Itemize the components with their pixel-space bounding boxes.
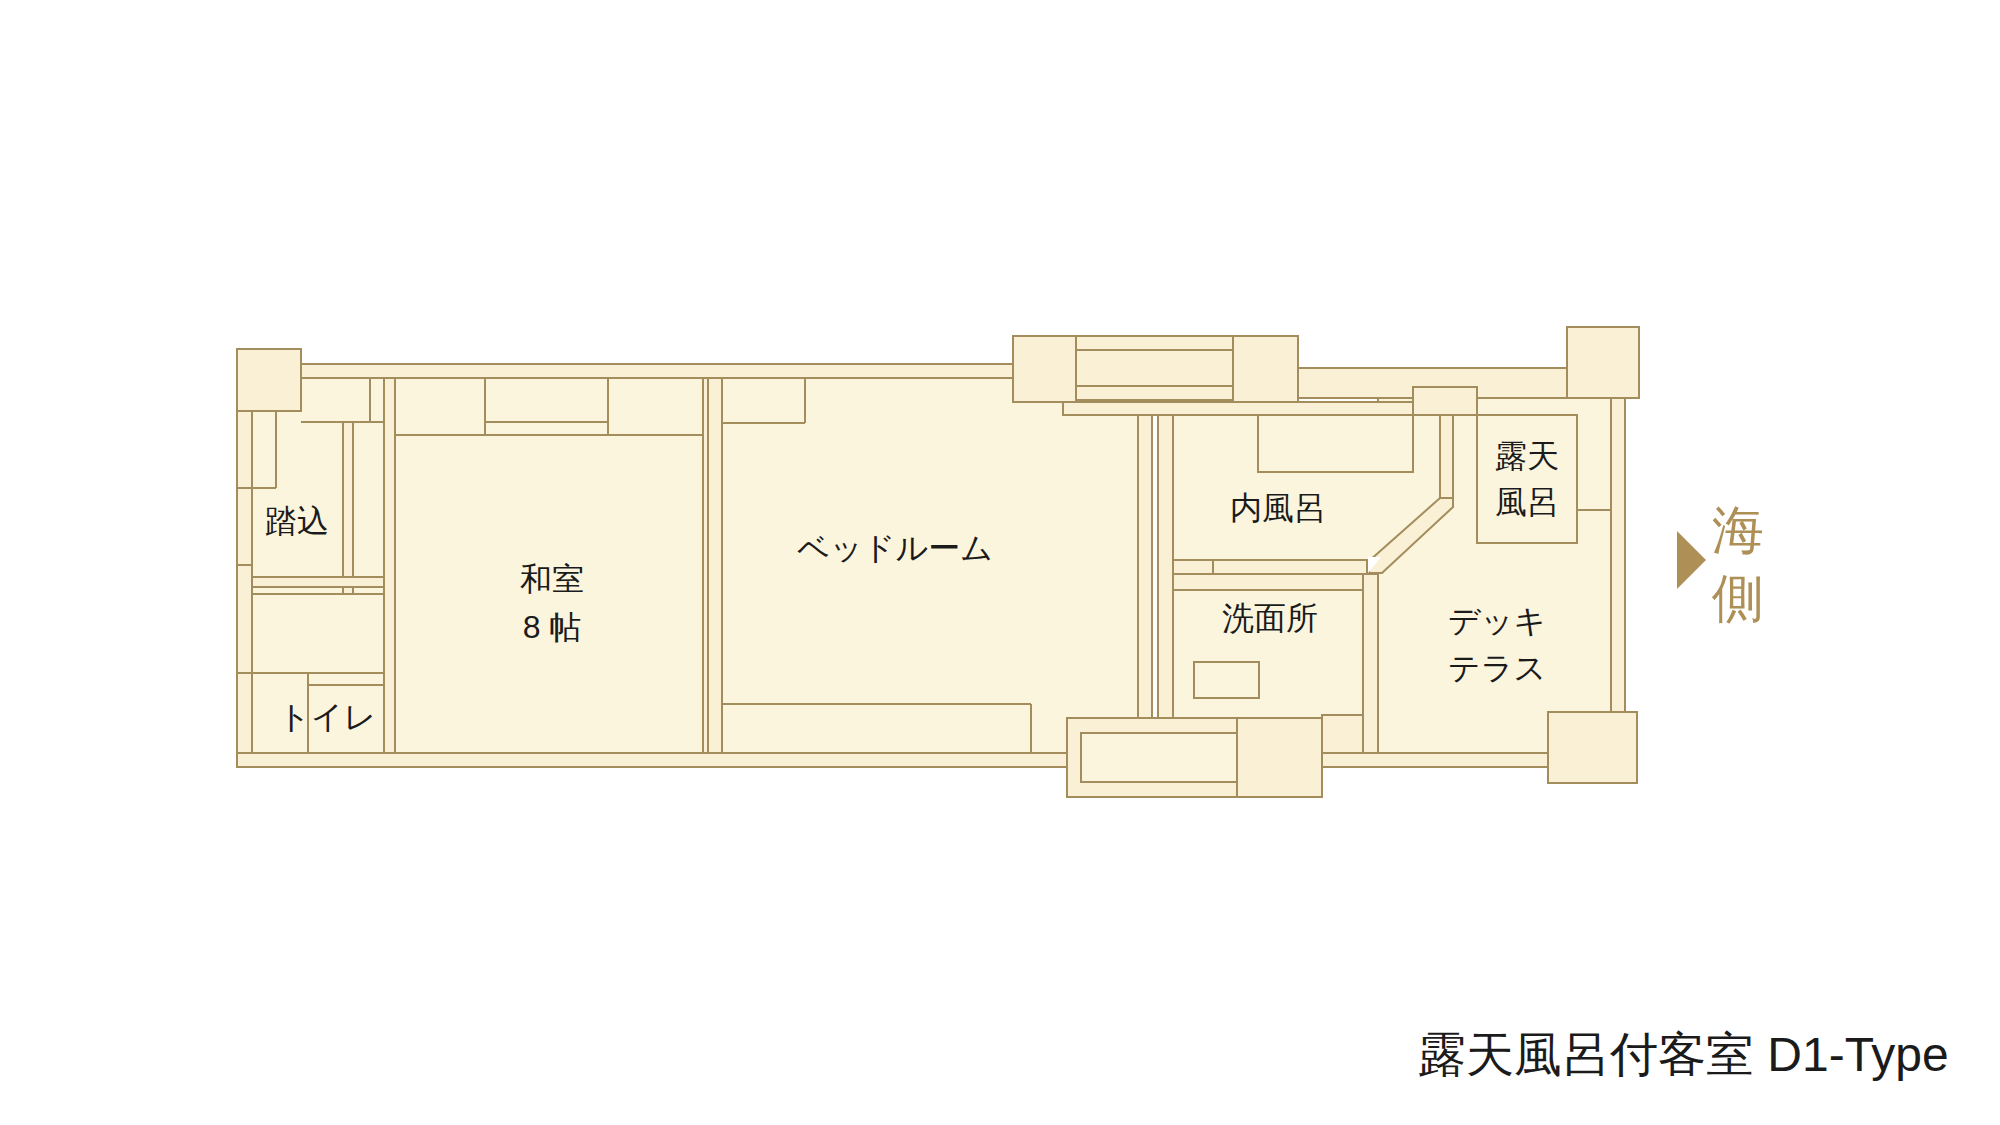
floorplan-page: 踏込 和室 8 帖 トイレ ベッドルーム 内風呂 洗面所 露天 風呂 デッキ テ… <box>0 0 2000 1125</box>
genkan-bottom-band <box>252 577 384 587</box>
floorplan-canvas: 踏込 和室 8 帖 トイレ ベッドルーム 内風呂 洗面所 露天 風呂 デッキ テ… <box>0 0 2000 1125</box>
left-exterior-wall <box>237 411 252 767</box>
washitsu-left-wall <box>384 378 395 753</box>
label-washitsu-size: 8 帖 <box>523 609 582 645</box>
top-right-protrusion-small <box>1233 336 1298 402</box>
top-wall-band <box>301 364 1013 378</box>
top-left-protrusion <box>237 349 301 411</box>
label-open-air-bath-2: 風呂 <box>1495 484 1559 520</box>
label-genkan: 踏込 <box>265 503 329 539</box>
bottom-connector-cell <box>1322 715 1363 753</box>
label-sea-side-2: 側 <box>1711 569 1764 627</box>
bath-entry-cell <box>1413 387 1477 415</box>
right-exterior-wall <box>1611 398 1625 753</box>
top-right-corner-box <box>1567 327 1639 398</box>
floorplan-title: 露天風呂付客室 D1-Type <box>1418 1028 1949 1081</box>
bath-block-top-strip <box>1063 402 1453 415</box>
bath-block-left-wall <box>1158 415 1173 718</box>
washroom-top-wall <box>1173 574 1363 590</box>
washitsu-bedroom-divider <box>703 378 722 753</box>
label-bedroom: ベッドルーム <box>797 530 993 566</box>
genkan-right-wall <box>343 422 353 594</box>
bedroom-right-wall <box>1138 415 1152 753</box>
bedroom-area <box>722 378 1152 767</box>
sea-side-arrow-icon <box>1677 531 1706 589</box>
label-toilet: トイレ <box>278 699 376 735</box>
washroom-counter-band <box>1173 560 1367 574</box>
label-washroom: 洗面所 <box>1222 600 1318 636</box>
label-sea-side-1: 海 <box>1712 501 1764 559</box>
top-window-band <box>1076 336 1233 400</box>
label-washitsu: 和室 <box>520 561 584 597</box>
bottom-protrusion-inner <box>1081 733 1237 782</box>
label-deck-2: テラス <box>1448 650 1546 686</box>
top-center-protrusion <box>1013 336 1076 402</box>
bottom-wall-right <box>1322 753 1548 767</box>
bottom-wall-left <box>237 753 1067 767</box>
label-open-air-bath-1: 露天 <box>1495 438 1559 474</box>
indoor-bath-right-wall <box>1440 415 1453 503</box>
bottom-right-corner-box <box>1548 712 1637 783</box>
label-indoor-bath: 内風呂 <box>1230 490 1326 526</box>
label-deck-1: デッキ <box>1448 603 1546 639</box>
washroom-right-wall <box>1363 574 1378 753</box>
